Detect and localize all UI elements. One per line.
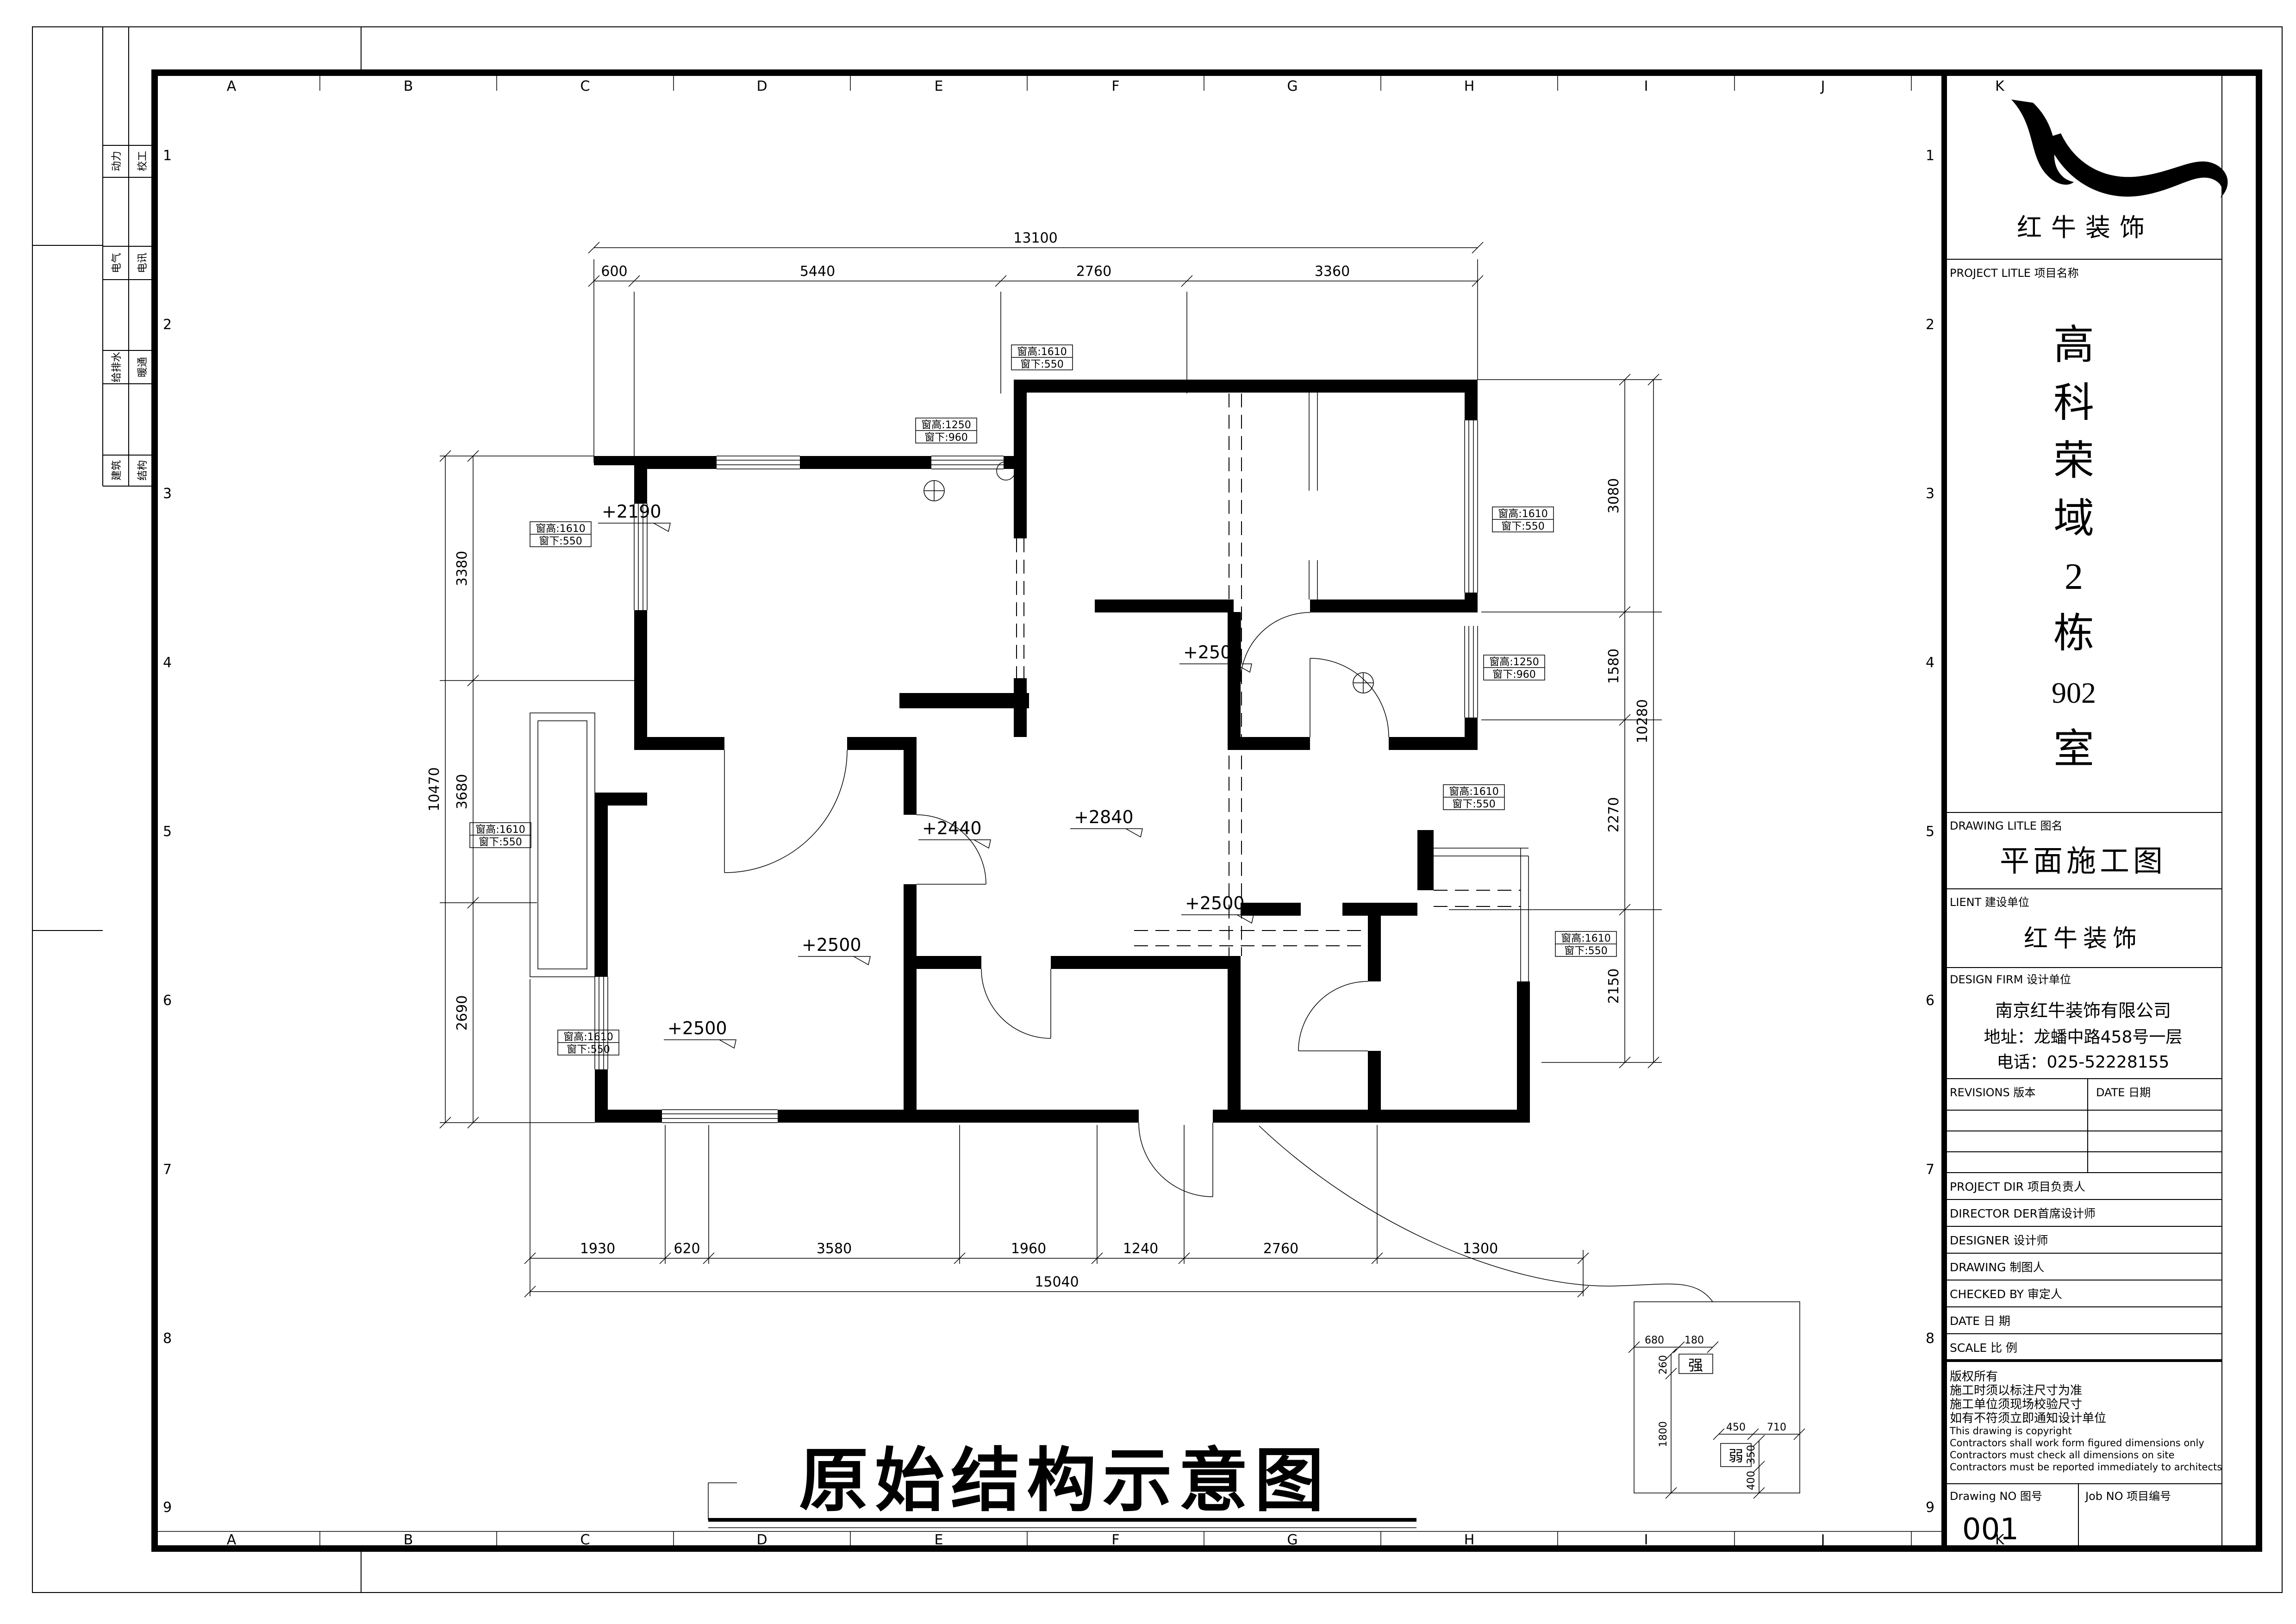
grid-number: 6 (1926, 993, 1934, 1009)
grid-letter: D (756, 78, 767, 94)
grid-number: 3 (163, 486, 172, 502)
revisions-date-label: DATE 日期 (2096, 1086, 2151, 1099)
grid-number: 1 (163, 148, 172, 164)
window-sill: 窗下:960 (924, 432, 967, 443)
grid-letter: F (1111, 78, 1119, 94)
job-no-label: Job NO 项目编号 (2084, 1490, 2171, 1503)
dim-bottom: 1300 (1463, 1241, 1498, 1257)
grid-letter: B (404, 1532, 413, 1548)
project-name-char: 栋 (2053, 612, 2094, 656)
grid-number: 2 (1926, 317, 1934, 333)
client-name: 红牛装饰 (2024, 925, 2142, 953)
design-firm-name: 南京红牛装饰有限公司 (1995, 1000, 2171, 1021)
discipline-label: 电气 (111, 253, 123, 273)
grid-letter: I (1644, 78, 1648, 94)
plan-title: 原始结构示意图 (708, 1443, 1416, 1528)
level-label: +2500 (668, 1018, 727, 1038)
dim-bottom-overall: 15040 (1035, 1274, 1079, 1290)
dim-right: 1580 (1606, 649, 1622, 684)
copyright-line: Contractors must check all dimensions on… (1950, 1449, 2175, 1461)
detail-dim: 350 (1746, 1445, 1757, 1464)
discipline-label: 建筑 (111, 460, 123, 481)
drawing-sheet: 动力 校工 电气 电讯 给排水 暖通 建筑 结构 A B C D E F G H… (0, 0, 2296, 1624)
grid-letter: G (1287, 1532, 1298, 1548)
window-label-box: 窗高:1610 窗下:550 (530, 522, 591, 547)
grid-letter: B (404, 78, 413, 94)
discipline-label: 动力 (111, 151, 123, 171)
window-sill: 窗下:550 (567, 1044, 610, 1056)
window-label-box: 窗高:1610 窗下:550 (470, 823, 531, 848)
window-height: 窗高:1610 (1498, 508, 1547, 520)
level-label: +2500 (1183, 642, 1243, 662)
dim-bottom: 1960 (1011, 1241, 1046, 1257)
detail-dim: 180 (1685, 1335, 1704, 1346)
grid-number: 4 (1926, 655, 1934, 671)
row-drawing: DRAWING 制图人 (1950, 1261, 2044, 1274)
balcony-left-inner (538, 721, 587, 969)
row-designer: DESIGNER 设计师 (1950, 1234, 2048, 1247)
grid-numbers-right: 1 2 3 4 5 6 7 8 9 (1926, 148, 1934, 1516)
window-height: 窗高:1610 (536, 523, 585, 535)
window-label-box: 窗高:1250 窗下:960 (1484, 655, 1545, 681)
client-label: LIENT 建设单位 (1950, 896, 2029, 909)
discipline-label: 给排水 (111, 352, 123, 382)
grid-letters-top: A B C D E F G H I J K (227, 73, 2005, 94)
detail-dim: 1800 (1658, 1421, 1669, 1447)
window-sill: 窗下:550 (479, 837, 522, 848)
window-label-box: 窗高:1610 窗下:550 (1443, 785, 1504, 810)
window-height: 窗高:1610 (475, 824, 525, 836)
grid-number: 9 (1926, 1499, 1934, 1516)
dim-top: 600 (601, 263, 627, 280)
bay-window-right (1434, 848, 1529, 1110)
discipline-label: 结构 (137, 460, 149, 481)
grid-letter: E (935, 1532, 943, 1548)
window-height: 窗高:1610 (563, 1031, 613, 1043)
row-director: DIRECTOR DER首席设计师 (1950, 1207, 2096, 1220)
discipline-label: 校工 (137, 151, 149, 171)
dim-bottom: 2760 (1263, 1241, 1298, 1257)
copyright-line: This drawing is copyright (1949, 1425, 2072, 1437)
grid-number: 9 (163, 1499, 172, 1516)
window-label-box: 窗高:1250 窗下:960 (916, 418, 977, 443)
level-label: +2440 (922, 818, 982, 838)
row-project-dir: PROJECT DIR 项目负责人 (1950, 1180, 2085, 1193)
window-label-box: 窗高:1610 窗下:550 (1555, 931, 1616, 957)
discipline-table: 动力 校工 电气 电讯 给排水 暖通 建筑 结构 (103, 27, 155, 486)
grid-number: 2 (163, 317, 172, 333)
grid-letter: I (1644, 1532, 1648, 1548)
leader-curve (1259, 1126, 1713, 1302)
project-name-char: 902 (2052, 676, 2096, 709)
row-scale: SCALE 比 例 (1950, 1341, 2017, 1355)
grid-number: 5 (163, 824, 172, 840)
project-label: PROJECT LITLE 项目名称 (1950, 267, 2079, 280)
balcony-left (530, 713, 595, 977)
grid-letter: D (756, 1532, 767, 1548)
drawing-no-value: 001 (1962, 1512, 2019, 1547)
window-sill: 窗下:550 (539, 536, 582, 547)
window-label-box: 窗高:1610 窗下:550 (558, 1030, 619, 1056)
sheet-borders (32, 27, 2282, 1593)
project-name-char: 室 (2053, 727, 2094, 772)
window-sill: 窗下:550 (1020, 359, 1063, 370)
copyright-line: 施工单位须现场校验尺寸 (1950, 1398, 2082, 1412)
discipline-label: 暖通 (137, 357, 149, 377)
revisions-label: REVISIONS 版本 (1950, 1086, 2035, 1099)
window-height: 窗高:1610 (1017, 346, 1067, 358)
grid-number: 4 (163, 655, 172, 671)
grid-letter: C (580, 1532, 590, 1548)
floor-plan-risers (924, 462, 1373, 693)
dim-top: 3360 (1315, 263, 1350, 280)
grid-letter: J (1820, 1532, 1825, 1548)
dim-left: 2690 (454, 995, 470, 1031)
window-sill: 窗下:960 (1492, 669, 1535, 681)
copyright-line: 如有不符须立即通知设计单位 (1950, 1412, 2106, 1425)
level-label: +2190 (602, 501, 661, 522)
grid-number: 5 (1926, 824, 1934, 840)
dim-top-overall: 13100 (1013, 230, 1057, 246)
project-name-char: 荣 (2053, 439, 2094, 484)
redniu-logo-icon (2011, 100, 2227, 198)
grid-number: 3 (1926, 486, 1934, 502)
copyright-block: 版权所有 施工时须以标注尺寸为准 施工单位须现场校验尺寸 如有不符须立即通知设计… (1949, 1370, 2222, 1473)
design-firm-phone: 电话：025-52228155 (1997, 1053, 2170, 1072)
dim-bottom: 3580 (817, 1241, 852, 1257)
detail-dim: 450 (1726, 1422, 1746, 1433)
window-height: 窗高:1610 (1449, 786, 1498, 798)
copyright-line: 施工时须以标注尺寸为准 (1950, 1384, 2082, 1398)
dim-top: 5440 (800, 263, 835, 280)
grid-letter: K (1995, 78, 2005, 94)
dim-right: 3080 (1606, 478, 1622, 513)
window-label-box: 窗高:1610 窗下:550 (1492, 507, 1554, 532)
dim-left: 3380 (454, 551, 470, 586)
partition (1309, 393, 1317, 600)
floor-plan-windows (530, 393, 1529, 1123)
grid-number: 1 (1926, 148, 1934, 164)
grid-letter: J (1820, 78, 1825, 94)
grid-letter: C (580, 78, 590, 94)
dim-right: 2270 (1606, 797, 1622, 832)
grid-letter: F (1111, 1532, 1119, 1548)
drawing-title: 平面施工图 (2000, 844, 2166, 879)
dim-bottom: 1930 (580, 1241, 615, 1257)
window-height: 窗高:1250 (921, 419, 971, 431)
discipline-label: 电讯 (137, 253, 149, 273)
grid-number: 7 (1926, 1162, 1934, 1178)
grid-letter: H (1464, 78, 1475, 94)
copyright-line: 版权所有 (1950, 1370, 1998, 1384)
entry-door (1139, 1123, 1213, 1197)
grid-numbers-left: 1 2 3 4 5 6 7 8 9 (163, 148, 172, 1516)
copyright-line: Contractors must be reported immediately… (1950, 1462, 2222, 1473)
window-height: 窗高:1610 (1561, 933, 1610, 944)
level-label: +2840 (1074, 807, 1134, 827)
project-name-char: 科 (2053, 381, 2094, 426)
dim-left: 3680 (454, 774, 470, 809)
detail-dim: 400 (1746, 1471, 1757, 1490)
level-label: +2500 (1185, 893, 1245, 913)
dim-top: 2760 (1076, 263, 1111, 280)
window-sill: 窗下:550 (1501, 521, 1544, 532)
project-name-char: 2 (2065, 556, 2083, 597)
window-height: 窗高:1250 (1489, 656, 1539, 668)
drawing-title-label: DRAWING LITLE 图名 (1950, 819, 2063, 832)
project-name-char: 高 (2053, 323, 2094, 368)
grid-number: 7 (163, 1162, 172, 1178)
electric-box-detail: 强 弱 680 180 260 1800 450 710 350 400 (1259, 1126, 1805, 1499)
detail-dim: 680 (1645, 1335, 1664, 1346)
project-name: 高 科 荣 域 2 栋 902 室 (2052, 323, 2096, 772)
grid-number: 8 (163, 1330, 172, 1347)
copyright-line: Contractors shall work form figured dime… (1950, 1437, 2204, 1449)
floor-plan-walls (594, 380, 1530, 1123)
grid-letter: A (227, 78, 237, 94)
level-label: +2500 (802, 935, 861, 955)
dim-bottom: 1240 (1123, 1241, 1158, 1257)
grid-letter: G (1287, 78, 1298, 94)
grid-number: 8 (1926, 1330, 1934, 1347)
weak-electric-box-label: 弱 (1728, 1447, 1743, 1465)
grid-letter: E (935, 78, 943, 94)
row-date: DATE 日 期 (1950, 1314, 2010, 1328)
strong-electric-box-label: 强 (1688, 1356, 1703, 1374)
window-sill: 窗下:550 (1452, 799, 1495, 810)
dim-bottom: 620 (674, 1241, 700, 1257)
dim-right: 2150 (1606, 968, 1622, 1004)
brand-name: 红牛装饰 (2017, 213, 2154, 242)
detail-dim: 710 (1767, 1422, 1786, 1433)
drawing-no-label: Drawing NO 图号 (1950, 1490, 2042, 1503)
dimension-ticks (1628, 1342, 1805, 1499)
dim-right-overall: 10280 (1635, 699, 1651, 743)
grid-letter: A (227, 1532, 237, 1548)
title-block: 红牛装饰 PROJECT LITLE 项目名称 高 科 荣 域 2 栋 902 … (1944, 100, 2227, 1549)
project-name-char: 域 (2053, 497, 2094, 542)
detail-dim: 260 (1658, 1355, 1669, 1374)
floor-plan-dashed-beams (1017, 394, 1521, 956)
design-firm-address: 地址：龙蟠中路458号一层 (1984, 1028, 2183, 1047)
window-label-box: 窗高:1610 窗下:550 (1011, 345, 1073, 370)
grid-letter: H (1464, 1532, 1475, 1548)
row-checked-by: CHECKED BY 审定人 (1950, 1287, 2062, 1301)
dim-left-overall: 10470 (426, 767, 443, 811)
plan-title-text: 原始结构示意图 (799, 1443, 1330, 1520)
window-sill: 窗下:550 (1564, 945, 1607, 957)
design-firm-label: DESIGN FIRM 设计单位 (1950, 973, 2071, 986)
grid-number: 6 (163, 993, 172, 1009)
